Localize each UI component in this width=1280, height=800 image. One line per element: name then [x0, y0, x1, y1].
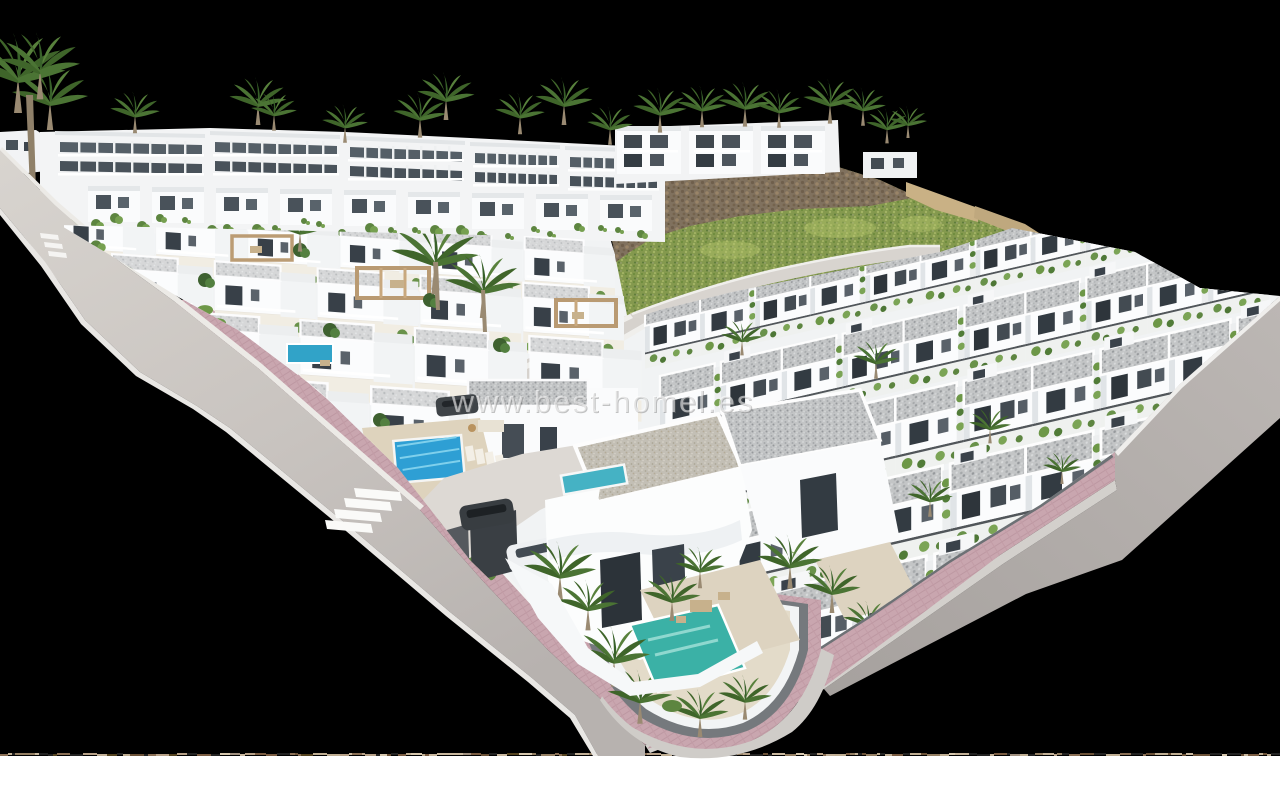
svg-text:www.best-homel.es: www.best-homel.es — [451, 384, 755, 419]
